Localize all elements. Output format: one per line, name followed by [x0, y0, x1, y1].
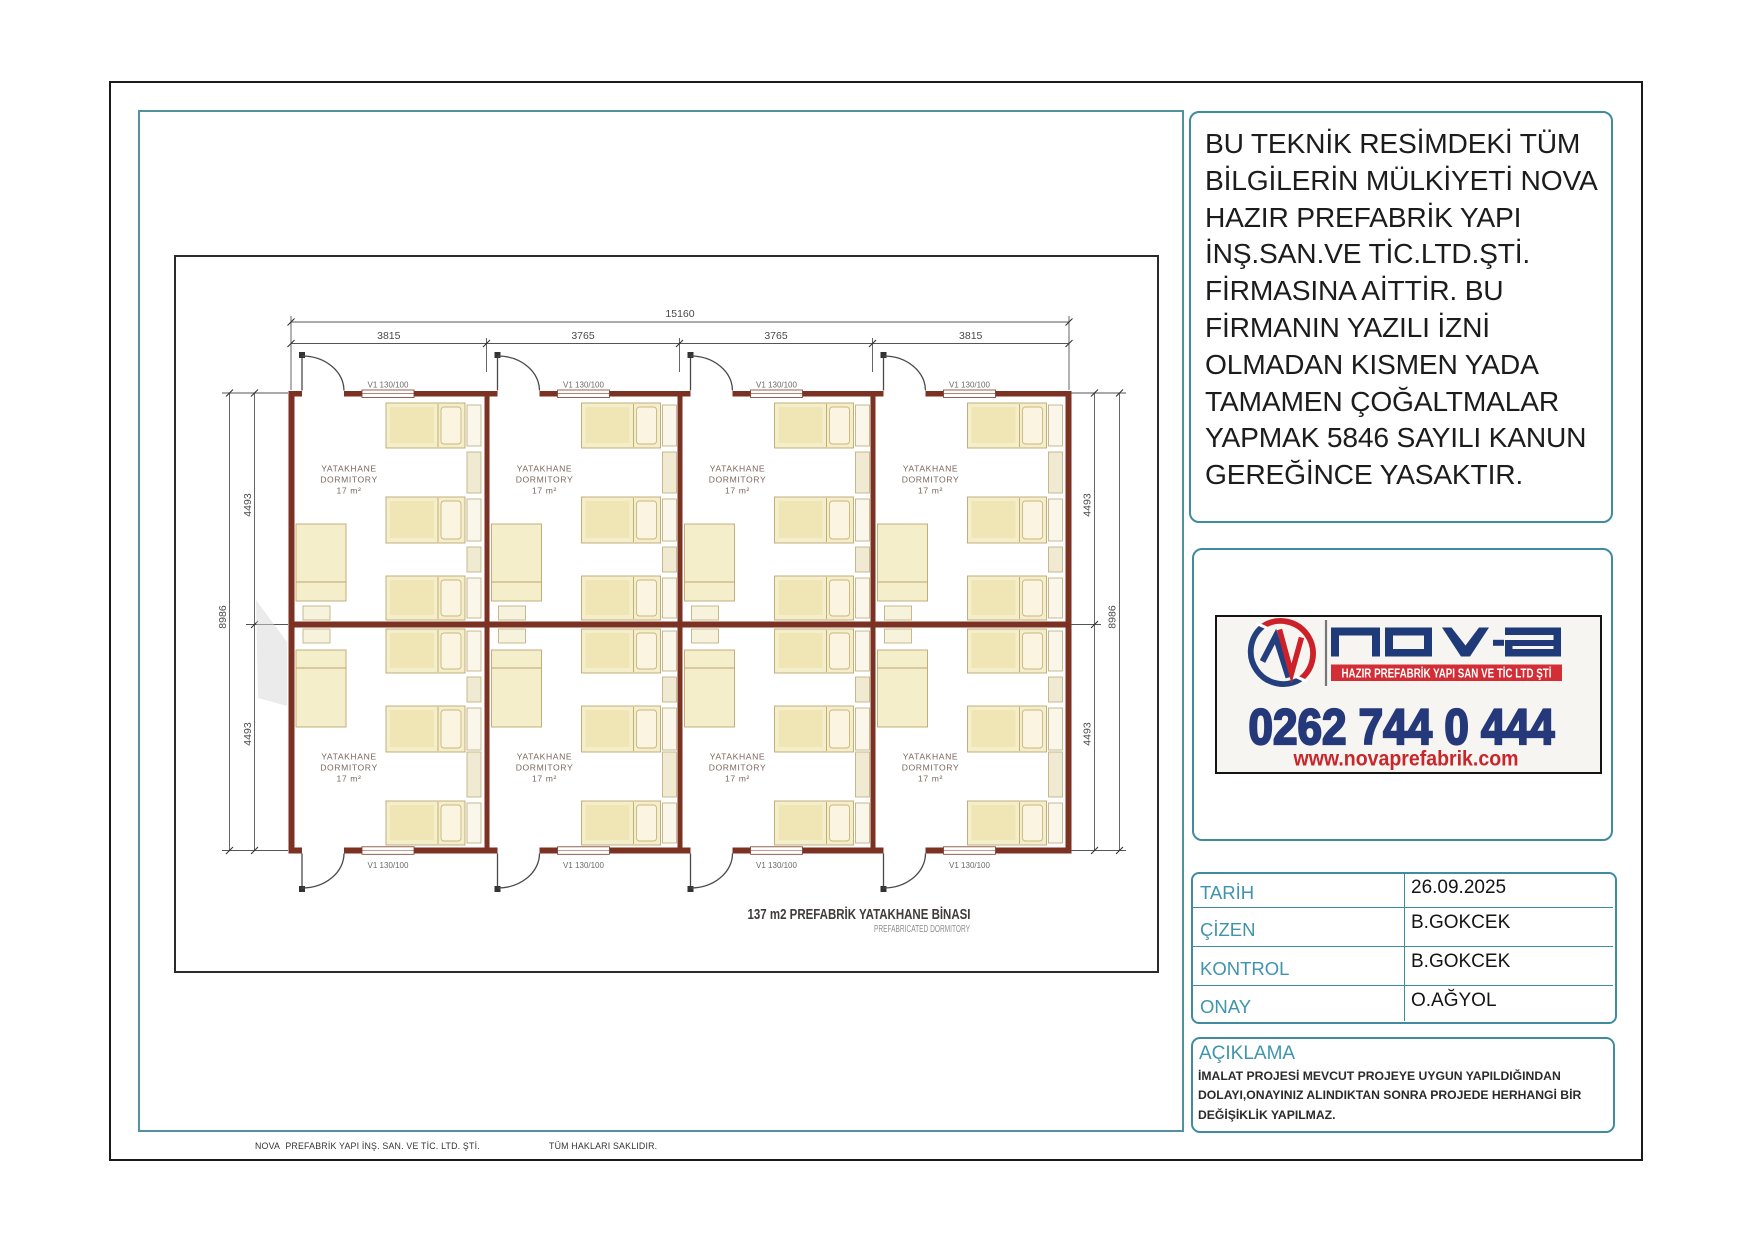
svg-text:HAZIR PREFABRİK YAPI SAN VE Tİ: HAZIR PREFABRİK YAPI SAN VE TİC LTD ŞTİ [1342, 666, 1552, 681]
svg-text:www.novaprefabrik.com: www.novaprefabrik.com [1293, 748, 1519, 771]
